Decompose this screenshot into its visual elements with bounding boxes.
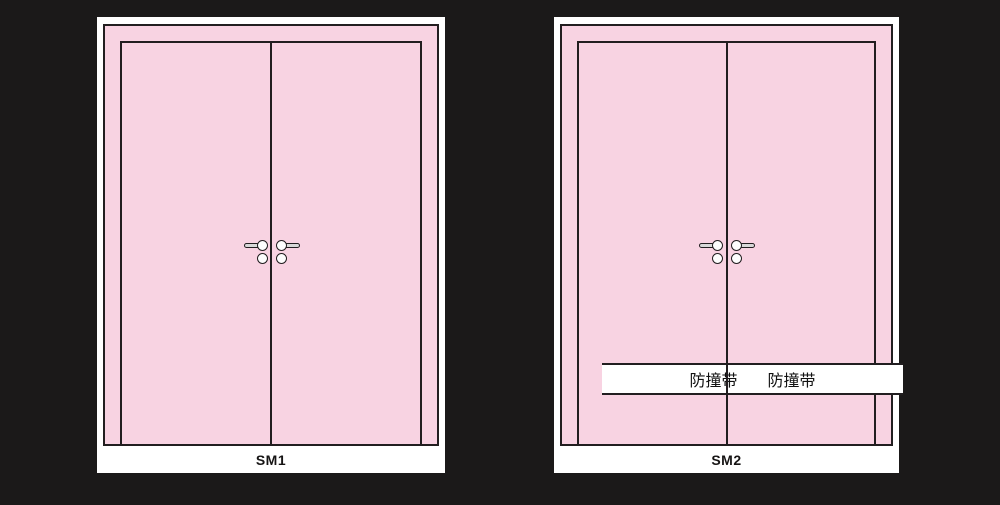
handle-rose-right-icon [731,240,742,251]
door-frame [103,24,439,446]
handle-rose-right-icon [276,240,287,251]
anti-collision-label-right: 防撞带 [750,365,904,393]
door-frame: 防撞带 防撞带 [560,24,893,446]
door-handle-icon [699,240,755,264]
lock-cylinder-left-icon [257,253,268,264]
door-elevation-sm2: 防撞带 防撞带 SM2 [554,17,899,473]
door-handle-icon [244,240,300,264]
lock-cylinder-right-icon [731,253,742,264]
lock-cylinder-left-icon [712,253,723,264]
door-elevation-sm1: SM1 [97,17,445,473]
anti-collision-strip: 防撞带 防撞带 [602,363,903,395]
panel-label-strip: SM1 [97,446,445,473]
lock-cylinder-right-icon [276,253,287,264]
panel-label: SM1 [256,452,286,468]
handle-rose-left-icon [257,240,268,251]
panel-label-strip: SM2 [554,446,899,473]
handle-rose-left-icon [712,240,723,251]
drawing-canvas: SM1 防撞带 防撞带 SM2 [0,0,1000,505]
panel-label: SM2 [711,452,741,468]
